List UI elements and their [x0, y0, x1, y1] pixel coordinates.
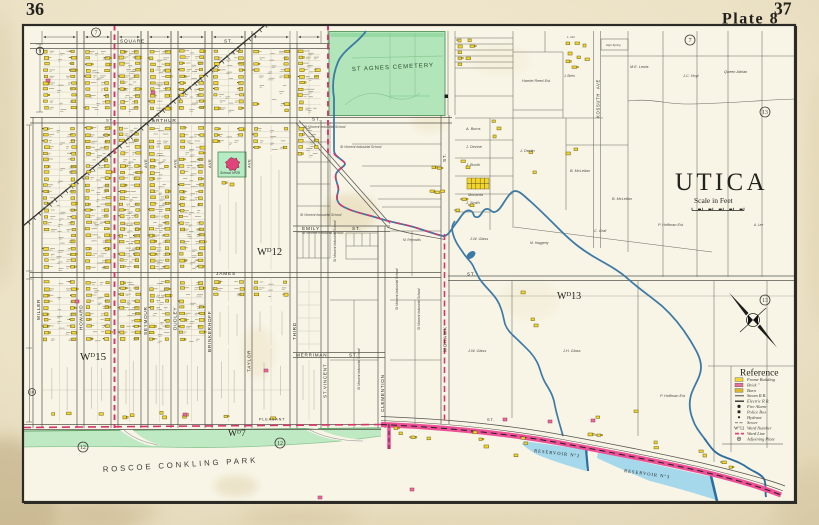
svg-text:ST.: ST. — [224, 39, 233, 45]
svg-text:M. Haggerty: M. Haggerty — [530, 241, 549, 245]
svg-text:Scale in Feet: Scale in Feet — [694, 196, 734, 205]
svg-text:Ward Number: Ward Number — [747, 426, 772, 431]
svg-text:P. Hoffman Est: P. Hoffman Est — [660, 394, 686, 398]
svg-text:KOSSUTH AVE: KOSSUTH AVE — [596, 79, 601, 118]
svg-text:Electric R.R.: Electric R.R. — [746, 399, 770, 404]
svg-text:AVE: AVE — [208, 159, 212, 168]
svg-text:36: 36 — [26, 0, 44, 19]
svg-text:J. Devine: J. Devine — [465, 145, 482, 149]
svg-text:M. Reynolds: M. Reynolds — [403, 238, 421, 242]
svg-text:P. Hoffman Est: P. Hoffman Est — [658, 223, 684, 227]
svg-text:J. Brien: J. Brien — [564, 74, 575, 78]
svg-text:Fire Alarm: Fire Alarm — [746, 404, 766, 409]
svg-text:AVE: AVE — [144, 159, 148, 168]
svg-text:7: 7 — [688, 37, 691, 44]
svg-text:B. McLellan: B. McLellan — [612, 197, 632, 201]
svg-text:Steam R.R.: Steam R.R. — [747, 393, 766, 398]
svg-text:St Vincent Industrial School: St Vincent Industrial School — [357, 348, 361, 390]
svg-text:UTICA: UTICA — [675, 169, 768, 196]
svg-text:Sewer: Sewer — [747, 420, 758, 425]
svg-text:13: 13 — [762, 110, 768, 116]
svg-text:Wº12: Wº12 — [734, 426, 745, 431]
svg-text:School Nº28: School Nº28 — [220, 171, 240, 175]
svg-text:ST.: ST. — [487, 417, 495, 422]
svg-text:ST.VINCENT: ST.VINCENT — [323, 364, 328, 398]
svg-text:BRINKERHOFF: BRINKERHOFF — [207, 311, 212, 352]
svg-text:MILLER: MILLER — [36, 299, 41, 320]
svg-text:SQUARE: SQUARE — [120, 39, 145, 45]
svg-text:A. Burns: A. Burns — [465, 127, 481, 131]
svg-text:St Vincent Industrial School: St Vincent Industrial School — [417, 288, 421, 330]
svg-text:J. Devlin: J. Devlin — [519, 149, 535, 153]
svg-text:Harriet Reed Est: Harriet Reed Est — [522, 79, 551, 83]
svg-text:ST.: ST. — [467, 271, 476, 276]
svg-text:ST.: ST. — [106, 118, 114, 123]
svg-text:7: 7 — [95, 31, 98, 37]
svg-text:PLEASANT: PLEASANT — [259, 418, 285, 422]
svg-text:B. McLellan: B. McLellan — [570, 169, 590, 173]
svg-text:A. Lee: A. Lee — [753, 223, 763, 227]
svg-text:St Vincent Industrial School: St Vincent Industrial School — [340, 145, 382, 149]
svg-text:J. Booth: J. Booth — [465, 163, 480, 167]
svg-text:ST.: ST. — [312, 117, 321, 122]
svg-text:Adjoining Plate: Adjoining Plate — [746, 436, 775, 441]
svg-text:ST.: ST. — [352, 226, 361, 232]
svg-text:Ward Line: Ward Line — [747, 431, 765, 436]
svg-text:Frame Building: Frame Building — [746, 377, 776, 382]
svg-text:13: 13 — [762, 298, 768, 304]
svg-text:JAMES: JAMES — [216, 271, 236, 277]
svg-text:Police Box: Police Box — [746, 409, 766, 414]
svg-text:THIRD: THIRD — [292, 322, 297, 340]
svg-text:AVE: AVE — [174, 159, 178, 168]
svg-text:Brick ″: Brick ″ — [747, 382, 760, 387]
svg-text:J.W. Glass: J.W. Glass — [469, 237, 488, 241]
svg-text:St Vincent Industrial School: St Vincent Industrial School — [333, 220, 337, 262]
svg-text:MERRIMAN: MERRIMAN — [296, 353, 327, 358]
svg-text:J. Smith: J. Smith — [465, 201, 480, 205]
svg-text:CLEMENTION: CLEMENTION — [380, 374, 385, 412]
svg-text:St Vincent Industrial School: St Vincent Industrial School — [302, 231, 344, 235]
svg-text:M.E. Lewis: M.E. Lewis — [630, 65, 649, 69]
svg-text:DUDLEY: DUDLEY — [173, 307, 178, 330]
svg-text:TAYLOR: TAYLOR — [247, 350, 252, 372]
svg-text:12: 12 — [277, 441, 283, 447]
svg-text:Monarda: Monarda — [468, 193, 483, 197]
svg-text:ST.: ST. — [442, 153, 447, 162]
svg-text:St Vincent Industrial School: St Vincent Industrial School — [304, 125, 346, 129]
svg-text:High Spring: High Spring — [606, 43, 621, 47]
svg-text:12: 12 — [80, 445, 86, 451]
svg-text:St Vincent Industrial School: St Vincent Industrial School — [395, 268, 399, 310]
svg-text:10: 10 — [30, 390, 35, 395]
svg-text:Barn: Barn — [747, 388, 757, 393]
svg-text:Hydrant: Hydrant — [746, 415, 762, 420]
svg-text:L. Dol: L. Dol — [567, 35, 575, 39]
svg-text:ARTHUR: ARTHUR — [152, 118, 177, 124]
svg-text:AVE: AVE — [248, 159, 252, 168]
svg-text:SEYMOUR: SEYMOUR — [143, 306, 148, 335]
svg-text:HOWARD: HOWARD — [79, 305, 84, 330]
svg-text:J.W. Glass: J.W. Glass — [467, 349, 486, 353]
svg-text:MOHAWK: MOHAWK — [443, 326, 448, 352]
svg-text:C. Graf: C. Graf — [594, 229, 607, 233]
svg-text:J.H. Glass: J.H. Glass — [562, 349, 581, 353]
svg-text:J.C. Hoyt: J.C. Hoyt — [682, 74, 700, 78]
svg-text:Queen Adrian: Queen Adrian — [724, 70, 747, 74]
svg-text:St Vincent Industrial School: St Vincent Industrial School — [300, 213, 342, 217]
